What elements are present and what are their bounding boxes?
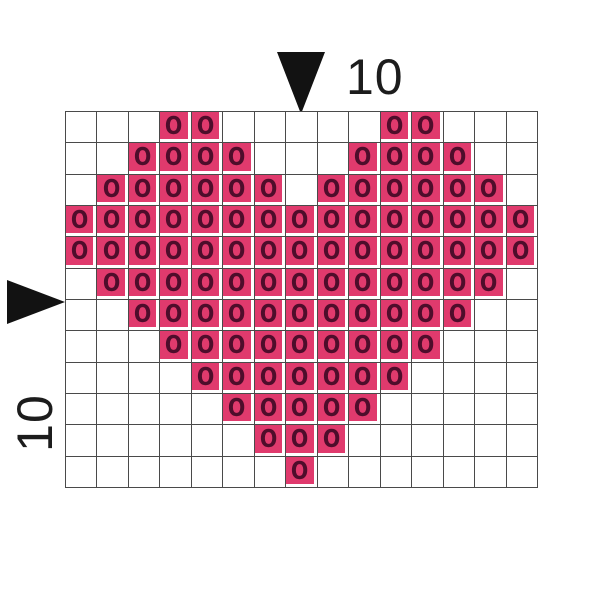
grid-cell [507,269,538,300]
stitch-block: O [97,237,124,264]
stitch-block: O [192,175,219,202]
grid-cell: O [444,175,475,206]
grid-cell [475,300,506,331]
grid-cell [97,143,128,174]
grid-cell [349,425,380,456]
grid-cell: O [412,112,443,143]
stitch-block: O [160,206,187,233]
stitch-symbol: O [386,270,403,295]
stitch-symbol: O [260,270,277,295]
stitch-block: O [318,425,345,452]
grid-cell [192,425,223,456]
grid-cell: O [66,237,97,268]
grid-cell [507,175,538,206]
grid-cell: O [286,331,317,362]
stitch-block: O [286,425,313,452]
stitch-block: O [444,237,471,264]
stitch-symbol: O [480,176,497,201]
grid-cell [444,363,475,394]
grid-cell: O [286,237,317,268]
grid-cell: O [223,269,254,300]
stitch-symbol: O [480,270,497,295]
grid-cell [507,363,538,394]
grid-cell [444,425,475,456]
grid-cell: O [381,237,412,268]
grid-cell: O [444,206,475,237]
stitch-block: O [255,363,282,390]
stitch-symbol: O [386,238,403,263]
stitch-block: O [444,206,471,233]
grid-cell: O [412,175,443,206]
stitch-block: O [255,425,282,452]
grid-cell: O [475,269,506,300]
grid-cell [97,457,128,488]
grid-cell: O [507,206,538,237]
grid-cell [129,394,160,425]
grid-cell: O [286,363,317,394]
stitch-block: O [129,175,156,202]
stitch-block: O [129,206,156,233]
grid-cell [475,394,506,425]
stitch-symbol: O [354,332,371,357]
stitch-block: O [286,394,313,421]
grid-cell [129,363,160,394]
grid-cell: O [192,112,223,143]
stitch-symbol: O [291,426,308,451]
stitch-block: O [286,269,313,296]
stitch-symbol: O [449,301,466,326]
stitch-symbol: O [417,207,434,232]
stitch-block: O [286,237,313,264]
grid-cell: O [223,300,254,331]
grid-cell: O [475,175,506,206]
stitch-symbol: O [449,207,466,232]
stitch-block: O [192,331,219,358]
stitch-block: O [475,206,502,233]
stitch-symbol: O [386,113,403,138]
grid-cell: O [192,269,223,300]
stitch-symbol: O [102,238,119,263]
stitch-block: O [318,331,345,358]
stitch-block: O [381,363,408,390]
stitch-block: O [475,269,502,296]
stitch-block: O [286,300,313,327]
grid-cell: O [349,269,380,300]
stitch-symbol: O [449,176,466,201]
grid-cell: O [507,237,538,268]
grid-cell: O [381,269,412,300]
stitch-grid: OOOOOOOOOOOOOOOOOOOOOOOOOOOOOOOOOOOOOOOO… [65,111,538,488]
stitch-symbol: O [228,270,245,295]
grid-cell: O [318,237,349,268]
stitch-block: O [381,175,408,202]
stitch-block: O [223,331,250,358]
grid-cell: O [381,143,412,174]
stitch-symbol: O [354,270,371,295]
grid-cell: O [381,363,412,394]
stitch-block: O [412,269,439,296]
stitch-block: O [160,175,187,202]
grid-cell [318,457,349,488]
stitch-symbol: O [291,301,308,326]
stitch-symbol: O [323,301,340,326]
stitch-block: O [475,237,502,264]
grid-cell: O [160,269,191,300]
stitch-block: O [223,394,250,421]
stitch-symbol: O [102,176,119,201]
stitch-symbol: O [134,301,151,326]
stitch-block: O [223,206,250,233]
grid-cell: O [475,206,506,237]
stitch-block: O [349,363,376,390]
grid-cell: O [192,300,223,331]
stitch-block: O [444,300,471,327]
grid-cell [66,112,97,143]
stitch-symbol: O [165,238,182,263]
grid-cell: O [475,237,506,268]
grid-cell [160,425,191,456]
stitch-block: O [475,175,502,202]
grid-cell [381,425,412,456]
stitch-symbol: O [165,301,182,326]
stitch-symbol: O [291,207,308,232]
stitch-symbol: O [260,426,277,451]
stitch-block: O [349,237,376,264]
stitch-symbol: O [323,395,340,420]
grid-cell [475,425,506,456]
grid-cell [66,363,97,394]
grid-cell: O [192,363,223,394]
stitch-symbol: O [354,176,371,201]
stitch-symbol: O [480,207,497,232]
grid-cell: O [286,269,317,300]
stitch-block: O [412,237,439,264]
stitch-block: O [192,143,219,170]
grid-cell: O [223,331,254,362]
stitch-symbol: O [354,301,371,326]
grid-cell: O [318,206,349,237]
grid-cell: O [444,237,475,268]
stitch-block: O [223,269,250,296]
stitch-block: O [381,206,408,233]
stitch-symbol: O [165,144,182,169]
grid-cell [129,457,160,488]
stitch-block: O [381,143,408,170]
grid-cell [349,457,380,488]
grid-cell: O [349,363,380,394]
stitch-block: O [349,206,376,233]
grid-cell: O [318,394,349,425]
stitch-symbol: O [291,395,308,420]
grid-cell: O [129,237,160,268]
stitch-symbol: O [134,270,151,295]
grid-cell: O [129,269,160,300]
grid-cell [507,394,538,425]
stitch-symbol: O [260,176,277,201]
grid-cell [160,394,191,425]
grid-cell [192,457,223,488]
stitch-block: O [129,269,156,296]
grid-cell [160,457,191,488]
left-gridline-count-label: 10 [4,394,66,452]
stitch-symbol: O [323,426,340,451]
grid-cell: O [381,175,412,206]
stitch-block: O [412,175,439,202]
stitch-block: O [286,331,313,358]
grid-cell: O [160,206,191,237]
stitch-symbol: O [417,144,434,169]
grid-cell: O [160,112,191,143]
grid-cell [286,143,317,174]
grid-cell [223,425,254,456]
stitch-block: O [349,143,376,170]
stitch-block: O [223,143,250,170]
stitch-block: O [381,237,408,264]
stitch-symbol: O [228,332,245,357]
stitch-symbol: O [291,270,308,295]
cross-stitch-chart: 10 10 OOOOOOOOOOOOOOOOOOOOOOOOOOOOOOOOOO… [0,0,600,600]
stitch-symbol: O [449,144,466,169]
stitch-block: O [318,206,345,233]
grid-cell: O [129,175,160,206]
grid-cell [66,143,97,174]
stitch-symbol: O [354,364,371,389]
stitch-symbol: O [260,207,277,232]
grid-cell: O [192,175,223,206]
stitch-block: O [318,237,345,264]
stitch-symbol: O [512,207,529,232]
center-row-arrow-icon [7,280,65,324]
stitch-block: O [444,175,471,202]
grid-cell: O [192,331,223,362]
stitch-block: O [318,300,345,327]
grid-cell [507,457,538,488]
stitch-symbol: O [197,270,214,295]
grid-cell: O [192,237,223,268]
grid-cell [160,363,191,394]
stitch-symbol: O [197,332,214,357]
stitch-symbol: O [417,270,434,295]
grid-cell [223,457,254,488]
stitch-block: O [444,269,471,296]
grid-cell: O [286,394,317,425]
stitch-symbol: O [134,176,151,201]
grid-cell: O [349,300,380,331]
stitch-symbol: O [260,332,277,357]
stitch-block: O [286,363,313,390]
grid-cell [507,425,538,456]
stitch-symbol: O [417,176,434,201]
stitch-symbol: O [417,113,434,138]
stitch-block: O [160,331,187,358]
grid-cell [255,457,286,488]
grid-cell: O [381,112,412,143]
stitch-block: O [255,175,282,202]
stitch-symbol: O [228,207,245,232]
grid-cell [66,331,97,362]
stitch-symbol: O [260,238,277,263]
grid-cell: O [381,331,412,362]
grid-cell: O [286,425,317,456]
grid-cell: O [223,363,254,394]
grid-cell [97,363,128,394]
stitch-block: O [192,237,219,264]
grid-cell: O [97,175,128,206]
grid-cell [255,143,286,174]
grid-cell: O [412,206,443,237]
stitch-block: O [160,112,187,139]
stitch-block: O [223,363,250,390]
stitch-symbol: O [134,144,151,169]
grid-cell: O [444,143,475,174]
stitch-block: O [192,300,219,327]
grid-cell [444,394,475,425]
grid-cell: O [255,331,286,362]
grid-cell [318,112,349,143]
grid-cell: O [223,143,254,174]
stitch-symbol: O [512,238,529,263]
stitch-symbol: O [228,176,245,201]
stitch-block: O [286,206,313,233]
stitch-symbol: O [197,207,214,232]
stitch-symbol: O [134,207,151,232]
center-column-arrow-icon [277,52,325,114]
grid-cell: O [444,269,475,300]
grid-cell: O [255,363,286,394]
stitch-block: O [129,237,156,264]
grid-cell [223,112,254,143]
grid-cell [444,457,475,488]
grid-cell: O [255,206,286,237]
stitch-symbol: O [323,176,340,201]
stitch-block: O [97,206,124,233]
grid-cell: O [66,206,97,237]
stitch-symbol: O [291,332,308,357]
stitch-block: O [97,175,124,202]
grid-cell: O [412,331,443,362]
stitch-symbol: O [197,238,214,263]
grid-cell: O [160,237,191,268]
stitch-block: O [507,206,534,233]
grid-cell [507,300,538,331]
stitch-block: O [129,143,156,170]
grid-cell [475,143,506,174]
stitch-block: O [192,206,219,233]
grid-cell: O [160,300,191,331]
stitch-symbol: O [323,332,340,357]
stitch-symbol: O [71,207,88,232]
stitch-symbol: O [386,207,403,232]
stitch-symbol: O [323,207,340,232]
grid-cell: O [349,143,380,174]
stitch-block: O [349,300,376,327]
stitch-symbol: O [354,395,371,420]
stitch-symbol: O [165,270,182,295]
stitch-block: O [286,457,313,484]
stitch-block: O [223,175,250,202]
stitch-block: O [223,237,250,264]
stitch-symbol: O [165,113,182,138]
stitch-block: O [381,300,408,327]
stitch-symbol: O [386,176,403,201]
stitch-block: O [66,206,93,233]
stitch-block: O [160,143,187,170]
stitch-block: O [318,269,345,296]
grid-cell: O [349,394,380,425]
stitch-block: O [255,269,282,296]
grid-cell [412,425,443,456]
stitch-block: O [507,237,534,264]
grid-cell: O [97,237,128,268]
stitch-symbol: O [228,144,245,169]
stitch-symbol: O [260,395,277,420]
stitch-symbol: O [197,176,214,201]
stitch-block: O [318,363,345,390]
grid-cell [475,363,506,394]
grid-cell: O [286,300,317,331]
grid-cell [412,394,443,425]
grid-cell: O [255,394,286,425]
grid-cell [475,331,506,362]
stitch-block: O [349,331,376,358]
grid-cell [97,331,128,362]
stitch-symbol: O [197,144,214,169]
stitch-block: O [160,269,187,296]
grid-cell: O [444,300,475,331]
grid-cell: O [192,206,223,237]
grid-cell: O [255,237,286,268]
stitch-symbol: O [354,238,371,263]
stitch-symbol: O [228,364,245,389]
grid-cell [192,394,223,425]
grid-cell [97,300,128,331]
grid-cell [97,425,128,456]
grid-cell [412,363,443,394]
stitch-block: O [129,300,156,327]
stitch-block: O [255,237,282,264]
grid-cell: O [255,175,286,206]
stitch-symbol: O [165,332,182,357]
stitch-symbol: O [197,301,214,326]
grid-cell: O [349,331,380,362]
stitch-block: O [223,300,250,327]
grid-cell: O [318,269,349,300]
stitch-symbol: O [386,332,403,357]
stitch-block: O [66,237,93,264]
stitch-symbol: O [102,270,119,295]
stitch-symbol: O [165,207,182,232]
grid-cell [97,394,128,425]
stitch-block: O [412,112,439,139]
stitch-symbol: O [386,364,403,389]
grid-cell [444,112,475,143]
stitch-symbol: O [228,395,245,420]
grid-cell [444,331,475,362]
stitch-block: O [192,269,219,296]
stitch-symbol: O [197,364,214,389]
stitch-symbol: O [291,364,308,389]
stitch-block: O [192,363,219,390]
stitch-block: O [412,331,439,358]
grid-cell [66,457,97,488]
grid-cell [475,112,506,143]
grid-cell [381,457,412,488]
stitch-symbol: O [228,238,245,263]
stitch-block: O [412,300,439,327]
stitch-block: O [349,394,376,421]
grid-cell: O [286,457,317,488]
grid-cell: O [129,300,160,331]
